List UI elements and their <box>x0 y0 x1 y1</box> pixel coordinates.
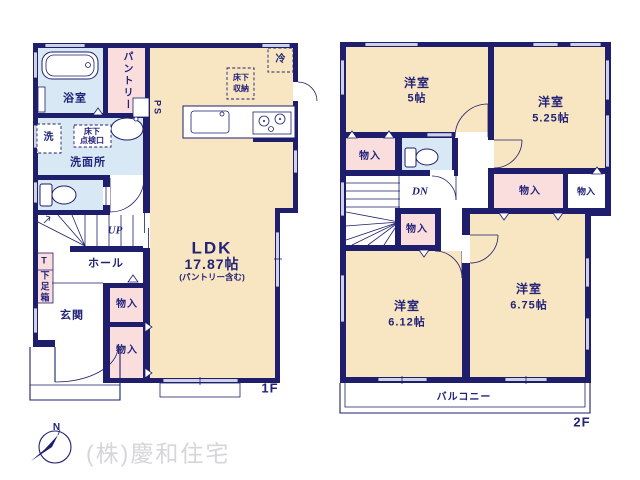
stairs-dn-label: DN <box>412 187 428 198</box>
company-watermark: (株)慶和住宅 <box>86 443 230 466</box>
room525-size-label: 5.25帖 <box>532 114 569 125</box>
stairs-up-label: UP <box>108 226 123 237</box>
room612-label: 洋室 <box>394 300 420 312</box>
room5-label: 洋室 <box>404 77 430 89</box>
pantry-label: パントリー <box>121 51 131 111</box>
toilet1f-bowl <box>52 186 76 204</box>
ps-label: PS <box>153 100 162 116</box>
laundry-label: 洗 <box>44 133 55 143</box>
ldk-note-label: (パントリー含む) <box>179 273 245 282</box>
compass-n-label: N <box>53 423 61 433</box>
underfloor-label-line2: 収納 <box>233 85 249 93</box>
washroom-label: 洗面所 <box>70 158 106 169</box>
shoe-box-label: 下足箱 <box>40 271 49 304</box>
room-ldk-floor <box>150 48 293 378</box>
room612-floor <box>346 251 462 377</box>
storage-d-label: 物入 <box>577 188 595 197</box>
entrance-label: 玄関 <box>60 311 84 322</box>
washbasin <box>111 118 143 140</box>
room675-label: 洋室 <box>516 283 542 295</box>
floorplan-drawing <box>0 0 640 480</box>
storage2-label: 物入 <box>116 346 138 356</box>
room612-size-label: 6.12帖 <box>388 318 425 329</box>
underfloor-label-line1: 床下 <box>233 74 249 82</box>
compass-north-arrow <box>31 430 71 463</box>
storage1-label: 物入 <box>116 300 138 310</box>
toilet1f-tank <box>40 184 52 206</box>
room5-size-label: 5帖 <box>407 94 426 105</box>
toilet2f-tank <box>405 148 416 167</box>
shoe-t-label: T <box>41 257 47 266</box>
bathroom-label: 浴室 <box>63 94 87 105</box>
hall-label: ホール <box>88 259 124 270</box>
ldk-size-label: 17.87帖 <box>184 257 239 271</box>
storage-b-label: 物入 <box>406 225 428 235</box>
floor2-stairs <box>346 176 400 245</box>
fridge-label: 冷 <box>276 55 287 65</box>
floor2-tag: 2F <box>573 416 590 429</box>
floor1-tag: 1F <box>261 382 278 395</box>
room525-label: 洋室 <box>538 96 564 108</box>
floor-hatch-label-line2: 点検口 <box>80 137 104 145</box>
balcony-label: バルコニー <box>437 393 492 403</box>
storage-c-label: 物入 <box>519 187 541 197</box>
toilet2f-bowl <box>416 149 438 165</box>
ps-shaft <box>133 98 149 117</box>
room675-size-label: 6.75帖 <box>510 301 547 312</box>
floorplan-canvas: 浴室 パントリー PS 洗 床下 点検口 洗面所 冷 床下 収納 LDK 17.… <box>0 0 640 480</box>
storage-a-label: 物入 <box>359 152 381 162</box>
floor2-fixtures <box>405 148 438 167</box>
bath-counter <box>38 87 45 112</box>
floor-hatch-label-line1: 床下 <box>84 128 100 136</box>
ldk-label: LDK <box>192 240 233 257</box>
